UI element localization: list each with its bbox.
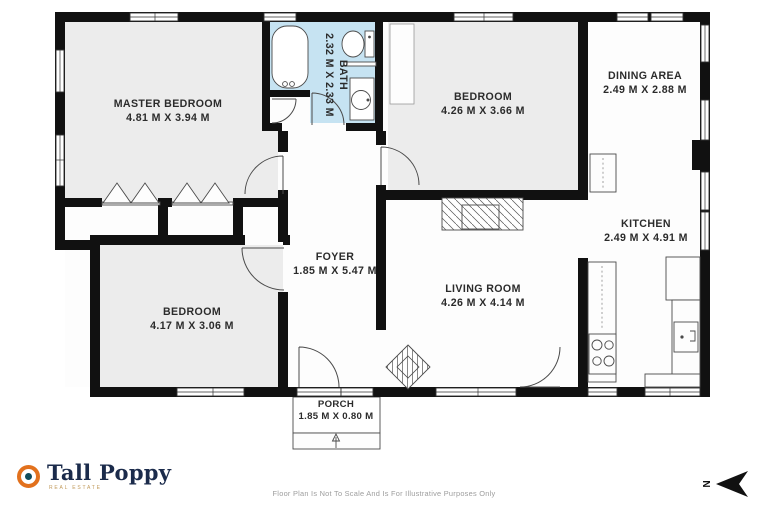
window: [701, 25, 709, 62]
kitchen-dims: 2.49 M X 4.91 M: [604, 232, 688, 244]
floor-plan: MASTER BEDROOM 4.81 M X 3.94 M BATH 2.32…: [0, 0, 768, 512]
window: [701, 212, 709, 250]
dining-label: DINING AREA: [608, 70, 682, 82]
compass-label: N: [700, 480, 711, 487]
bath-closet-pocket: [270, 97, 310, 123]
logo-ring-icon: [17, 465, 40, 488]
master-bedroom-dims: 4.81 M X 3.94 M: [126, 112, 210, 124]
stove-icon: [589, 334, 616, 374]
bedroom-top-dims: 4.26 M X 3.66 M: [441, 105, 525, 117]
bath-dims: 2.32 M X 2.33 M: [323, 33, 335, 117]
porch-dims: 1.85 M X 0.80 M: [299, 411, 374, 422]
window: [436, 388, 516, 396]
bedroom-top-label: BEDROOM: [454, 91, 512, 103]
floor-plan-page: MASTER BEDROOM 4.81 M X 3.94 M BATH 2.32…: [0, 0, 768, 512]
fridge-icon: [666, 257, 700, 300]
brand-logo: Tall Poppy REAL ESTATE: [17, 461, 171, 488]
window: [177, 388, 244, 396]
window: [645, 388, 700, 396]
brand-name: Tall Poppy: [47, 461, 171, 485]
window: [588, 388, 617, 396]
living-room-dims: 4.26 M X 4.14 M: [441, 297, 525, 309]
fireplace-icon: [442, 198, 523, 230]
bath-label: BATH: [337, 60, 349, 90]
front-door-glazing: [297, 388, 341, 396]
foyer-label: FOYER: [316, 251, 355, 263]
vanity-sink-icon: [350, 78, 374, 120]
porch-label: PORCH: [318, 399, 354, 410]
north-arrow-icon: N: [690, 462, 760, 507]
window: [56, 135, 64, 186]
master-bedroom-label: MASTER BEDROOM: [114, 98, 223, 110]
logo-dot-icon: [25, 473, 32, 480]
foyer-dims: 1.85 M X 5.47 M: [293, 265, 377, 277]
window: [454, 13, 513, 21]
dining-dims: 2.49 M X 2.88 M: [603, 84, 687, 96]
living-room-label: LIVING ROOM: [445, 283, 521, 295]
window: [701, 172, 709, 210]
bedroom-nook: [390, 24, 414, 104]
bedroom-bottom-dims: 4.17 M X 3.06 M: [150, 320, 234, 332]
kitchen-label: KITCHEN: [621, 218, 671, 230]
window: [651, 13, 683, 21]
kitchen-counter-bottom: [645, 374, 700, 387]
sink-icon: [674, 322, 698, 352]
toilet-icon: [342, 31, 374, 57]
disclaimer-text: Floor Plan Is Not To Scale And Is For Il…: [0, 489, 768, 498]
bathtub-icon: [272, 26, 308, 88]
window: [701, 100, 709, 140]
bedroom-bottom-label: BEDROOM: [163, 306, 221, 318]
window: [56, 50, 64, 92]
window: [341, 388, 373, 396]
window: [617, 13, 648, 21]
window: [264, 13, 296, 21]
window: [130, 13, 178, 21]
